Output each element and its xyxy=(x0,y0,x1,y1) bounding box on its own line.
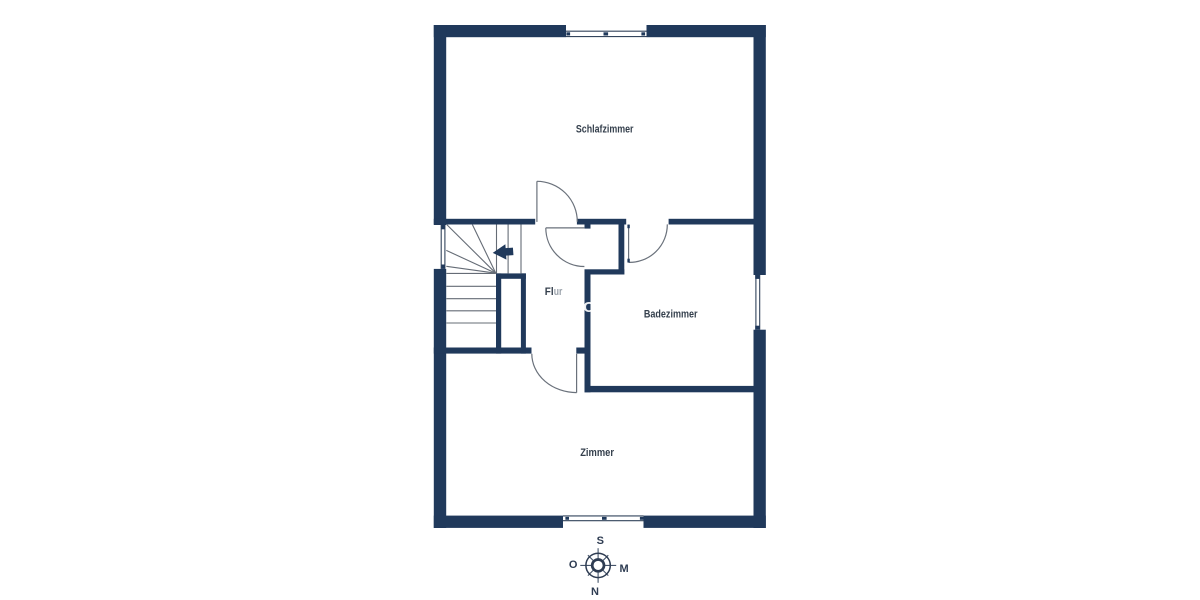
svg-text:Schlafzimmer: Schlafzimmer xyxy=(576,124,634,136)
svg-text:ur: ur xyxy=(554,286,563,298)
svg-text:O: O xyxy=(569,559,578,571)
svg-text:M: M xyxy=(620,563,629,575)
svg-text:N: N xyxy=(591,586,599,598)
svg-text:Fl: Fl xyxy=(545,286,554,298)
svg-text:S: S xyxy=(597,535,604,547)
svg-text:Zimmer: Zimmer xyxy=(580,447,614,459)
svg-text:C: C xyxy=(583,299,594,316)
svg-text:Badezimmer: Badezimmer xyxy=(644,309,698,321)
